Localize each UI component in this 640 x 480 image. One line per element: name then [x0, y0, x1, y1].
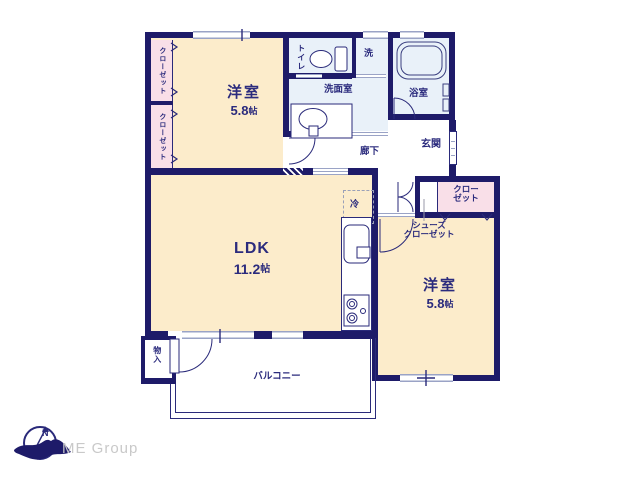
- label-closet-right: クロー ゼット: [440, 185, 492, 204]
- room-name-ldk: LDK: [222, 239, 282, 259]
- label-entrance: 玄関: [421, 139, 441, 150]
- toilet-icon: [310, 47, 347, 71]
- size-number: 11.2: [234, 262, 260, 277]
- size-number: 5.8: [230, 104, 248, 118]
- label-storage: 物入: [152, 346, 161, 364]
- closet-right-line2: ゼット: [440, 194, 492, 203]
- label-closet-left-top: クローゼット: [153, 42, 171, 99]
- door-arc-bathroom: [394, 98, 415, 119]
- size-unit: 帖: [249, 107, 258, 117]
- size-unit: 帖: [445, 300, 454, 310]
- label-closet-left-bottom: クローゼット: [153, 107, 171, 166]
- compass-north-letter: N: [42, 429, 49, 439]
- size-number: 5.8: [426, 297, 444, 311]
- label-refrigerator: 冷: [350, 200, 359, 210]
- stove-icon: [344, 295, 369, 326]
- fixtures-overlay: [0, 0, 640, 480]
- label-washroom: 洗面室: [324, 85, 353, 95]
- room-size-bedroom-top: 5.8帖: [214, 104, 274, 119]
- room-name-bedroom-right: 洋室: [410, 277, 470, 295]
- label-hallway: 廊下: [360, 147, 379, 157]
- label-bathroom: 浴室: [409, 89, 428, 99]
- shoes-closet-line2: クローゼット: [396, 230, 462, 239]
- size-unit: 帖: [260, 264, 270, 275]
- window-tick-marks: [220, 29, 435, 386]
- floor-plan-canvas: 洋室 5.8帖 LDK 11.2帖 洋室 5.8帖 トイレ 洗 洗面室 浴室 玄…: [0, 0, 640, 480]
- door-arc-balcony: [170, 339, 212, 373]
- logo-brand-text: ME Group: [62, 440, 138, 457]
- double-door-shoe-closet-icon: [398, 182, 413, 212]
- label-shoes-closet: シューズ クローゼット: [396, 221, 462, 240]
- label-toilet: トイレ: [296, 44, 305, 71]
- room-size-bedroom-right: 5.8帖: [410, 297, 470, 312]
- door-arc-bedroom-top: [289, 138, 315, 164]
- room-name-bedroom-top: 洋室: [214, 84, 274, 102]
- kitchen-sink-icon: [344, 225, 370, 263]
- label-washer: 洗: [364, 49, 373, 59]
- vanity-sink-icon: [291, 104, 352, 138]
- room-size-ldk: 11.2帖: [217, 261, 287, 278]
- label-balcony: バルコニー: [237, 370, 317, 384]
